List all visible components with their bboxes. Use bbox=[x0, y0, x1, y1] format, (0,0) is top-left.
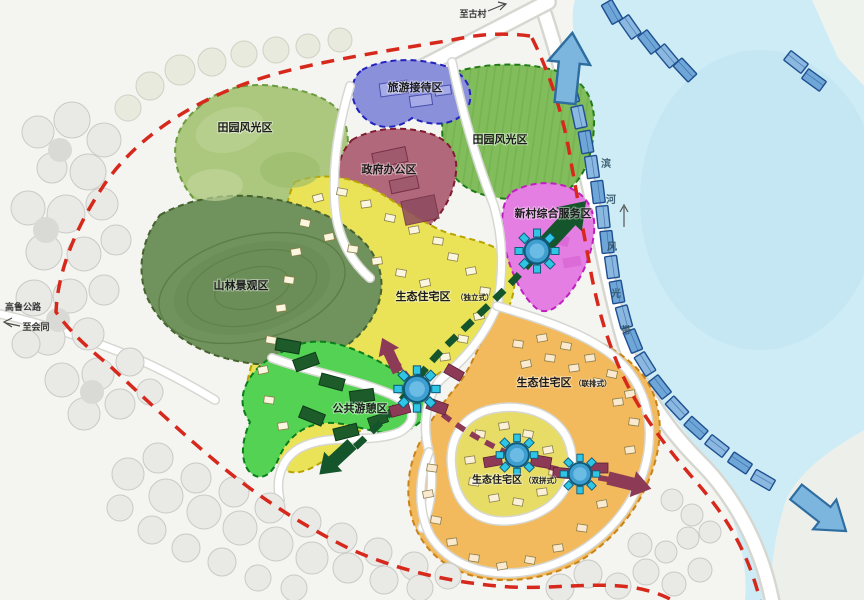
svg-text:河: 河 bbox=[606, 194, 616, 206]
svg-text:带: 带 bbox=[621, 324, 631, 337]
label-zone-field-left: 田园风光区 bbox=[218, 120, 273, 134]
label-zone-eco-semi-suffix: （双拼式） bbox=[524, 475, 562, 485]
label-zone-eco-detached: 生态住宅区 bbox=[396, 289, 451, 303]
label-zone-mountain: 山林景观区 bbox=[214, 278, 269, 292]
label-zone-eco-semi: 生态住宅区 bbox=[472, 473, 522, 486]
label-zone-recreation: 公共游憩区 bbox=[333, 401, 388, 415]
label-zone-service: 新村综合服务区 bbox=[515, 206, 592, 220]
plaza-node-central bbox=[394, 366, 440, 412]
svg-text:光: 光 bbox=[610, 287, 621, 300]
label-zone-eco-townhouse-suffix: （联排式） bbox=[574, 378, 612, 388]
label-zone-tourism: 旅游接待区 bbox=[388, 80, 443, 94]
plaza-node-south bbox=[496, 434, 538, 476]
label-to-huitong: 至会同 bbox=[22, 321, 49, 332]
label-zone-eco-townhouse: 生态住宅区 bbox=[517, 375, 572, 389]
label-zone-field-right: 田园风光区 bbox=[473, 132, 528, 146]
label-zone-eco-detached-suffix: （独立式） bbox=[456, 292, 494, 302]
village-master-plan-map: 至古村 高鲁公路 至会同 旅游接待区 田园风光区 田园风光区 政府办公区 山林景… bbox=[0, 0, 864, 600]
plan-svg: 至古村 高鲁公路 至会同 旅游接待区 田园风光区 田园风光区 政府办公区 山林景… bbox=[0, 0, 864, 600]
label-zone-government: 政府办公区 bbox=[362, 162, 417, 176]
svg-text:风: 风 bbox=[607, 241, 617, 253]
label-highway: 高鲁公路 bbox=[5, 301, 42, 312]
label-to-gucun: 至古村 bbox=[459, 8, 486, 19]
plaza-node-service bbox=[515, 229, 559, 273]
plaza-node-east bbox=[560, 454, 600, 494]
svg-text:滨: 滨 bbox=[601, 157, 611, 170]
